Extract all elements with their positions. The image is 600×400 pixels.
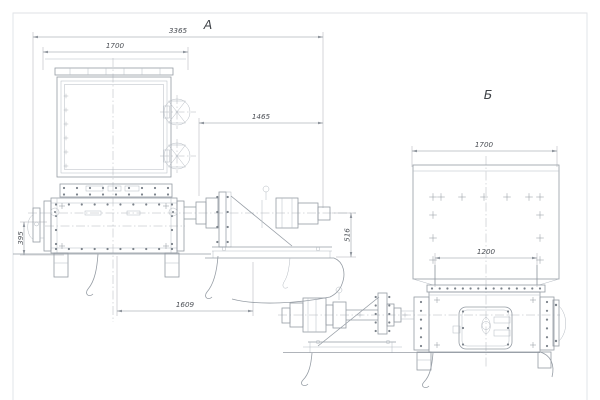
foot-left: [54, 253, 68, 277]
view-a: А 3365 1700 1465: [13, 17, 356, 322]
rotor-symbol-top: [160, 95, 196, 129]
dim-overall-a-value: 3365: [169, 26, 188, 35]
hopper-bolt-marks-right: [536, 211, 544, 264]
door-hinge: [494, 330, 510, 336]
dim-drive-height-value: 516: [343, 228, 352, 242]
flange-bolts-row2: [63, 193, 169, 195]
rotor-symbol-bottom: [160, 139, 196, 173]
dim-base-length: 1609: [117, 256, 253, 316]
door-bolts-top: [462, 310, 509, 312]
foot-left-b: [417, 352, 431, 370]
foundation-a: [13, 254, 344, 303]
body-bolts-top: [55, 203, 173, 205]
hopper-bolt-marks-left: [429, 211, 437, 264]
right-bracket: [553, 300, 566, 346]
dim-drive-length: 1465: [199, 112, 323, 196]
hopper-bolt-marks-top: [429, 193, 544, 201]
sheet-border: [13, 13, 587, 400]
foot-right: [165, 253, 179, 277]
flange-bolts-r: [227, 196, 229, 243]
dim-hopper-a-value: 1700: [106, 41, 125, 50]
door-bolts-mid: [462, 327, 509, 329]
anchor-hook: [87, 254, 98, 296]
outlet-flange-bolts: [431, 287, 541, 289]
dim-outlet-value: 1200: [477, 247, 496, 256]
bearing-flange: [219, 192, 226, 247]
side-bolts-right: [546, 301, 548, 347]
gusset-brace: [231, 196, 292, 246]
flange-b-bolts-l: [375, 296, 377, 332]
dim-drive-length-value: 1465: [252, 112, 271, 121]
dim-base-length-value: 1609: [176, 300, 195, 309]
dim-side-height-value: 395: [16, 231, 25, 245]
view-a-label: А: [203, 17, 213, 32]
flange-b-bolts-r: [388, 296, 390, 332]
hopper-flange-ticks: [70, 68, 160, 75]
anchor-hook: [206, 256, 218, 299]
gusset-brace-b: [318, 297, 379, 346]
bearing-flange-b: [378, 293, 387, 334]
dim-hopper-a: 1700: [43, 41, 188, 70]
dim-drive-height: 516: [332, 213, 356, 257]
eye-bolt: [263, 186, 269, 192]
dim-hopper-b: 1700: [412, 140, 557, 167]
anchor-hook: [283, 258, 290, 288]
technical-drawing: А 3365 1700 1465: [0, 0, 600, 400]
view-b: Б 1700 1200: [278, 87, 566, 388]
body-front: [414, 292, 566, 370]
dim-hopper-b-value: 1700: [475, 140, 494, 149]
foot-right-b: [538, 352, 551, 368]
flange-bolts-row1: [63, 187, 169, 189]
drawing-canvas: А 3365 1700 1465: [0, 0, 600, 400]
door-hinge: [494, 317, 510, 323]
drive-a: [184, 186, 332, 258]
view-b-label: Б: [484, 87, 493, 102]
anchor-hook: [302, 353, 312, 386]
body-plan: [28, 184, 184, 277]
view-b-centerlines: [278, 156, 560, 368]
hopper-plan: [45, 59, 196, 177]
side-bolts-left: [420, 301, 422, 347]
drive-b: [282, 287, 414, 353]
body-corner-marks-b: [434, 297, 536, 348]
inspection-door: [453, 307, 512, 349]
view-a-centerlines: [28, 58, 356, 322]
door-bolts-bottom: [462, 343, 509, 345]
